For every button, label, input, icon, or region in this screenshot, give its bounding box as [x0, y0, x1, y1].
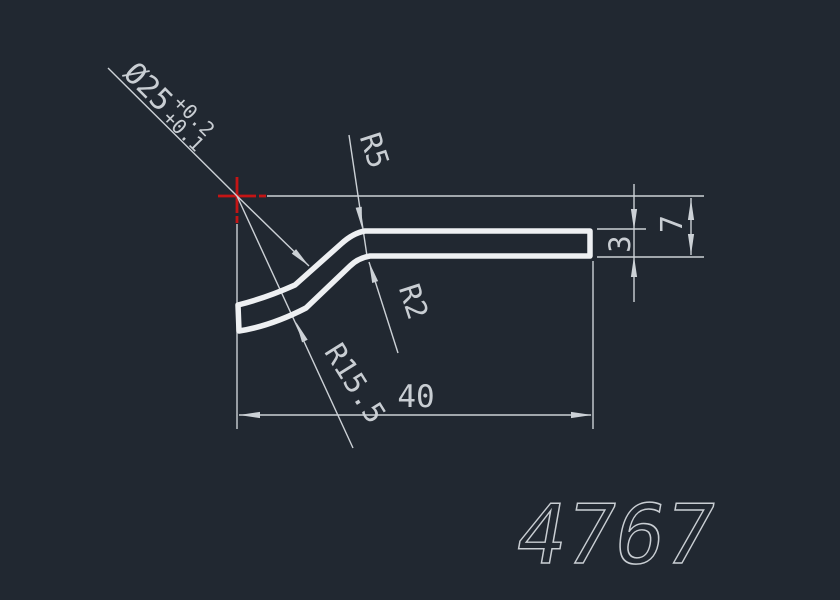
part-number[interactable]: 4767 [509, 488, 723, 583]
length-value: 40 [397, 379, 434, 415]
cad-viewport: Ø25 +0.2 +0.1 R15.5 R5 R2 7 [0, 0, 840, 600]
thickness-value: 3 [603, 235, 637, 252]
height-value: 7 [655, 215, 690, 233]
part-number-text: 4767 [509, 488, 723, 583]
cad-canvas[interactable]: Ø25 +0.2 +0.1 R15.5 R5 R2 7 [0, 0, 840, 600]
